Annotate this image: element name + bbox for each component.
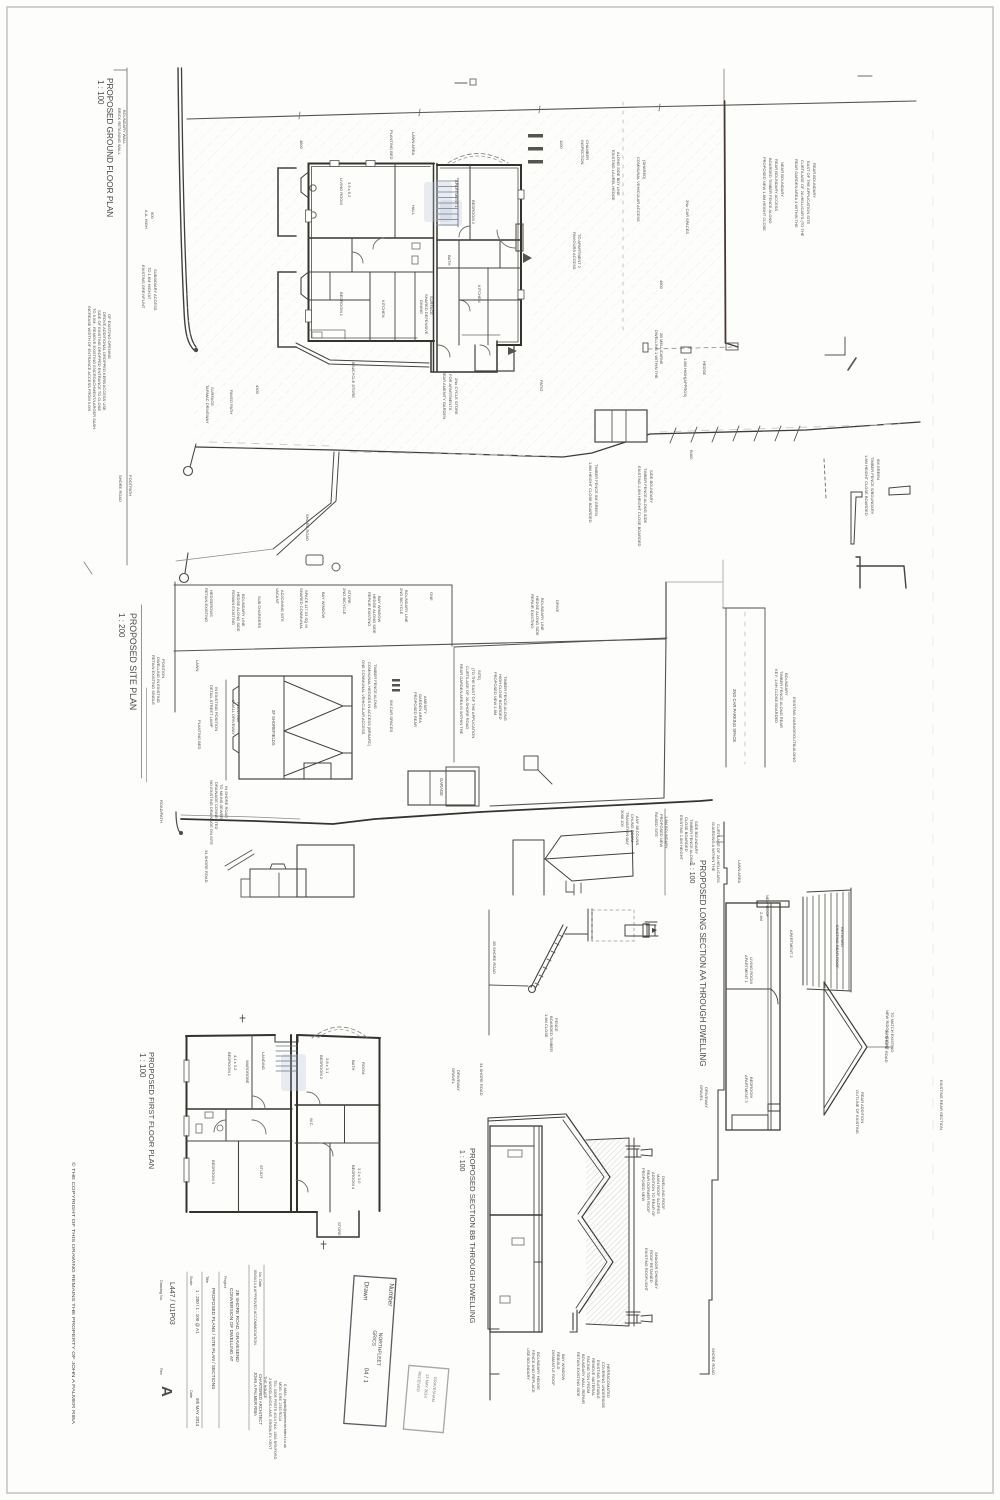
svg-text:04 / 1: 04 / 1 (362, 1368, 369, 1384)
svg-text:KITCHEN: KITCHEN (381, 300, 386, 318)
svg-text:EXISTING GARAGE/OUTBUILDING: EXISTING GARAGE/OUTBUILDING (792, 697, 797, 762)
svg-text:BOUNDARY LINE: BOUNDARY LINE (540, 598, 545, 631)
svg-text:LIVING ROOM: LIVING ROOM (749, 957, 754, 984)
svg-text:Drawn: Drawn (361, 1281, 369, 1301)
svg-text:© THE COPYRIGHT OF THIS DRAWI: © THE COPYRIGHT OF THIS DRAWING REMAINS … (71, 1162, 76, 1424)
svg-text:4800: 4800 (659, 280, 664, 290)
svg-text:SIDE BOUNDARY: SIDE BOUNDARY (649, 470, 654, 503)
svg-text:POSITION: POSITION (161, 659, 166, 678)
svg-text:2B MELLICARNE: 2B MELLICARNE (659, 333, 664, 365)
svg-text:1100: 1100 (559, 140, 564, 149)
svg-text:Title: Title (205, 1276, 209, 1283)
svg-text:GARDEN AREA: GARDEN AREA (418, 694, 423, 723)
svg-text:PROPOSED LONG SECTION AA THROU: PROPOSED LONG SECTION AA THROUGH DWELLIN… (698, 860, 707, 1067)
svg-text:NEW RIDGE HEIGHT: NEW RIDGE HEIGHT (885, 1010, 890, 1050)
svg-text:BOUNDARY WALL REPAIR: BOUNDARY WALL REPAIR (581, 1354, 586, 1404)
svg-text:PROPOSED FIRST FLOOR PLAN: PROPOSED FIRST FLOOR PLAN (147, 1052, 156, 1169)
svg-text:BEDROOM 1: BEDROOM 1 (227, 1052, 232, 1077)
svg-text:CURTILAGE OF 2A HELLICARS: CURTILAGE OF 2A HELLICARS (716, 824, 721, 883)
svg-text:PROPOSED PLANS / SITE PLAN / S: PROPOSED PLANS / SITE PLAN / SECTIONS (210, 1288, 216, 1389)
svg-text:SHAGGR CHIMNEY: SHAGGR CHIMNEY (654, 1252, 659, 1289)
svg-text:PROPOSED NEW: PROPOSED NEW (641, 1168, 646, 1201)
svg-text:2 WOODLANDS LANE, BROMLEY, KEN: 2 WOODLANDS LANE, BROMLEY, KENT (268, 1378, 272, 1450)
svg-text:2NO BICYCLE: 2NO BICYCLE (399, 588, 404, 615)
svg-text:NEAR BOUNDARY: NEAR BOUNDARY (780, 162, 785, 197)
svg-text:1 : 100: 1 : 100 (458, 1150, 465, 1172)
svg-text:INCREASE WIDTH OF ENTRANCE ACC: INCREASE WIDTH OF ENTRANCE ACCESS FROM 5… (87, 306, 92, 411)
svg-text:HEDGEROWS: HEDGEROWS (209, 590, 214, 617)
svg-text:BOUNDARY: BOUNDARY (784, 673, 789, 696)
svg-text:1.8M HEIGHT CLOSE BOARDED: 1.8M HEIGHT CLOSE BOARDED (588, 462, 593, 523)
svg-text:REAR ADDITION: REAR ADDITION (860, 1092, 865, 1123)
svg-text:ROWAN EXISTING: ROWAN EXISTING (231, 590, 236, 625)
svg-text:HEDGE ALONG SIDE: HEDGE ALONG SIDE (535, 596, 540, 636)
svg-text:APARTMENT 2: APARTMENT 2 (789, 930, 794, 958)
svg-text:PAVED PATH: PAVED PATH (229, 390, 234, 414)
svg-text:AMENITY: AMENITY (423, 696, 428, 714)
svg-text:3.8 x 3.1: 3.8 x 3.1 (325, 1058, 330, 1074)
svg-text:HEDGE ALONG SIDE: HEDGE ALONG SIDE (236, 592, 241, 632)
svg-text:WARDROBE: WARDROBE (245, 1060, 250, 1084)
svg-text:TO 1.8M HIGH AT: TO 1.8M HIGH AT (147, 267, 152, 300)
svg-text:SUB CHARGERS: SUB CHARGERS (257, 596, 262, 628)
svg-text:DROVE ADDITIONAL DROPPED KERB: DROVE ADDITIONAL DROPPED KERB ACCESS USE (102, 312, 107, 411)
svg-text:2NO BICYCLE: 2NO BICYCLE (342, 588, 347, 615)
svg-text:BRICK RETAINING WALL: BRICK RETAINING WALL (117, 108, 122, 155)
svg-text:APARTMENT 3: APARTMENT 3 (744, 1075, 749, 1103)
svg-text:BAY WINDOW: BAY WINDOW (561, 1354, 566, 1381)
svg-text:BEDROOM 2: BEDROOM 2 (471, 200, 476, 225)
svg-text:TRANSITION BAY: TRANSITION BAY (625, 812, 630, 845)
svg-text:BIN/CYCLE STORE: BIN/CYCLE STORE (351, 362, 356, 398)
svg-text:SURFACE: SURFACE (210, 387, 215, 406)
svg-text:PROPOSED GROUND FLOOR PLAN: PROPOSED GROUND FLOOR PLAN (105, 78, 114, 217)
svg-text:EXISTING REAR ROOF: EXISTING REAR ROOF (835, 925, 840, 969)
svg-text:DRAINAGE CONNECTED: DRAINAGE CONNECTED (214, 782, 219, 829)
svg-text:SIDE BOUNDARY: SIDE BOUNDARY (694, 821, 699, 854)
svg-text:SPACE 117.03 SQ M: SPACE 117.03 SQ M (304, 590, 309, 628)
svg-text:4800: 4800 (299, 140, 304, 150)
svg-text:CONVERSION OF DWELLING AT: CONVERSION OF DWELLING AT (228, 1288, 234, 1362)
svg-text:DWELLING ROOF: DWELLING ROOF (661, 1176, 666, 1210)
svg-text:BOUNDARY LINE: BOUNDARY LINE (241, 594, 246, 627)
svg-text:CURTILAGE OF 2A HELLICAR'S (TO: CURTILAGE OF 2A HELLICAR'S (TO THE (800, 160, 805, 237)
svg-text:KEY: 1.8H CLOSE BOARDED: KEY: 1.8H CLOSE BOARDED (774, 669, 779, 723)
svg-text:1.8M HEIGHT CLOSE BOARDED: 1.8M HEIGHT CLOSE BOARDED (864, 455, 869, 516)
svg-text:2B SHORE ROAD: 2B SHORE ROAD (492, 941, 497, 974)
svg-text:BATH: BATH (447, 255, 452, 265)
svg-text:OF EXISTING OPENING: OF EXISTING OPENING (107, 314, 112, 359)
svg-text:STUDY: STUDY (259, 1165, 264, 1179)
svg-text:1 : 200: 1 : 200 (117, 613, 126, 638)
svg-text:DWELLING 1 WITHIN THE: DWELLING 1 WITHIN THE (654, 330, 659, 379)
svg-text:RAISED SITE: RAISED SITE (654, 812, 659, 837)
svg-text:REAR DORMER ROOF: REAR DORMER ROOF (646, 1170, 651, 1213)
svg-text:LAWN AREA: LAWN AREA (737, 860, 742, 884)
svg-text:RECEIVED: RECEIVED (416, 1371, 423, 1392)
svg-text:SITE): SITE) (477, 670, 482, 681)
svg-text:SMALL DRIVEWAY: SMALL DRIVEWAY (231, 700, 236, 735)
svg-text:ONE: ONE (429, 592, 434, 601)
svg-text:HERRACOMATED: HERRACOMATED (606, 1364, 611, 1398)
svg-text:FOR APARTMENTS: FOR APARTMENTS (448, 374, 453, 411)
svg-text:1 : 100: 1 : 100 (138, 1053, 147, 1078)
svg-text:900: 900 (150, 212, 155, 219)
svg-text:DISMANTLE ROOF: DISMANTLE ROOF (551, 1350, 556, 1386)
svg-text:DINING: DINING (419, 300, 424, 314)
svg-text:TO APARTMENT 2: TO APARTMENT 2 (577, 234, 582, 269)
svg-text:TIMBER FENCE ALONG REAR: TIMBER FENCE ALONG REAR (779, 671, 784, 728)
svg-text:SIDE OF EXISTING DROPPED ENTRA: SIDE OF EXISTING DROPPED ENTRANCE TO CLO… (97, 310, 102, 411)
svg-text:REAR BOUNDARY: REAR BOUNDARY (812, 163, 817, 198)
svg-text:GRAVEL: GRAVEL (451, 1068, 456, 1085)
svg-text:BEDROOM 4: BEDROOM 4 (351, 1165, 356, 1190)
svg-text:LAWN: LAWN (195, 660, 200, 672)
svg-text:3.2 x 3.0: 3.2 x 3.0 (357, 1168, 362, 1184)
svg-text:DWELLING IN EXISTING: DWELLING IN EXISTING (156, 657, 161, 703)
svg-text:FENCE: FENCE (554, 1018, 559, 1032)
svg-text:HIGH CLOSE BOARDED: HIGH CLOSE BOARDED (498, 674, 503, 720)
svg-text:GR/CS: GR/CS (370, 1330, 377, 1347)
svg-text:APARTMENT 1: APARTMENT 1 (744, 955, 749, 983)
svg-text:TIMBER FENCE ALONG: TIMBER FENCE ALONG (503, 676, 508, 721)
svg-text:1 : 200 / 1 : 100 @ A1: 1 : 200 / 1 : 100 @ A1 (195, 1290, 200, 1334)
svg-text:BEDROOM 1: BEDROOM 1 (339, 292, 344, 317)
svg-text:TIMBER FENCE ALONG: TIMBER FENCE ALONG (689, 819, 694, 864)
svg-text:ONE COMMUNAL VEHICULAR ACCESS: ONE COMMUNAL VEHICULAR ACCESS (361, 660, 366, 735)
svg-text:DRIVE: DRIVE (555, 600, 560, 613)
svg-text:(SHARED): (SHARED) (642, 160, 647, 180)
svg-text:9th MAY 2014: 9th MAY 2014 (195, 1398, 200, 1427)
svg-text:NO EXISTING DRAINAGE ON SITE: NO EXISTING DRAINAGE ON SITE (209, 780, 214, 845)
svg-text:34 SHORE ROAD: 34 SHORE ROAD (204, 850, 209, 883)
svg-text:3.9 x 5.2: 3.9 x 5.2 (347, 182, 352, 198)
svg-text:DETAIL STREET LAMP: DETAIL STREET LAMP (209, 685, 214, 728)
svg-text:Number: Number (386, 1283, 395, 1307)
svg-text:CURTILAGE OF 2A SHORE ROAD: CURTILAGE OF 2A SHORE ROAD (465, 666, 470, 729)
svg-text:6M GREEN: 6M GREEN (876, 459, 881, 480)
svg-text:SHARED DEFENSIVE: SHARED DEFENSIVE (424, 294, 429, 335)
svg-text:HALL: HALL (411, 205, 416, 216)
svg-text:THE HOUSE: THE HOUSE (263, 1376, 267, 1399)
svg-text:EXISTING SUITABLE: EXISTING SUITABLE (596, 1360, 601, 1399)
svg-text:SHORE ROAD: SHORE ROAD (118, 475, 123, 502)
svg-text:(TO THE EAST OF THE APPLICATIO: (TO THE EAST OF THE APPLICATION (471, 668, 476, 738)
svg-text:2B SHORE ROAD, GRAVESEND: 2B SHORE ROAD, GRAVESEND (234, 1290, 240, 1362)
svg-text:A: A (158, 1386, 175, 1397)
svg-text:LAWN AREA: LAWN AREA (411, 132, 416, 156)
svg-text:ADJOINING SITE: ADJOINING SITE (280, 590, 285, 622)
svg-text:RETAIN EXISTING SINGLE: RETAIN EXISTING SINGLE (151, 655, 156, 705)
svg-text:RETAIN EXISTING: RETAIN EXISTING (204, 588, 209, 622)
svg-text:APARTMENT 1: APARTMENT 1 (454, 180, 459, 208)
svg-text:BOUNDARY LINE: BOUNDARY LINE (404, 590, 409, 623)
svg-text:NEW ROOF: NEW ROOF (765, 895, 770, 918)
svg-text:REBUILD: REBUILD (556, 1352, 561, 1369)
svg-text:PROPOSED REAR: PROPOSED REAR (413, 692, 418, 727)
svg-text:LIVING ROOM: LIVING ROOM (339, 178, 344, 205)
svg-text:RETAINED: RETAINED (840, 927, 845, 947)
svg-text:COVERING UNDERSIDE: COVERING UNDERSIDE (601, 1362, 606, 1408)
svg-text:SUBSIDIARY ACCESS: SUBSIDIARY ACCESS (153, 269, 158, 311)
svg-text:W.C.: W.C. (309, 1118, 314, 1127)
svg-text:3068 100: 3068 100 (620, 810, 625, 827)
svg-text:L447 / U1P03: L447 / U1P03 (168, 1282, 175, 1325)
svg-text:BATH: BATH (351, 1060, 356, 1070)
svg-text:9M CAR SPACES: 9M CAR SPACES (389, 700, 394, 732)
svg-text:TEL: 0208 PRSTE 4014 FAX: 135: TEL: 0208 PRSTE 4014 FAX: 1356 BRNFORD (273, 1380, 277, 1460)
svg-text:PROPOSED SITE PLAN: PROPOSED SITE PLAN (128, 613, 138, 710)
svg-text:SHARED COMMUNAL: SHARED COMMUNAL (299, 588, 304, 630)
svg-text:TO 5.5M - REMOVE EXISTING ENCR: TO 5.5M - REMOVE EXISTING ENCROACHMENT/L… (92, 308, 97, 429)
svg-text:REAR AMENITY GARDEN: REAR AMENITY GARDEN (442, 371, 447, 419)
svg-text:13 MAY 2014: 13 MAY 2014 (423, 1374, 430, 1399)
svg-text:EXISTING REAR SECTION: EXISTING REAR SECTION (939, 1080, 944, 1130)
svg-text:4.1 x 3.2: 4.1 x 3.2 (233, 1055, 238, 1071)
svg-text:BOARDED TIMBER: BOARDED TIMBER (549, 1016, 554, 1052)
svg-text:DRIVEWAY: DRIVEWAY (704, 1087, 709, 1108)
svg-text:STORE: STORE (347, 590, 352, 604)
svg-text:TO MAINS SEWER: TO MAINS SEWER (219, 784, 224, 819)
svg-text:PATIO: PATIO (539, 380, 544, 391)
svg-text:MAIN ROOF SLOPES: MAIN ROOF SLOPES (656, 1174, 661, 1214)
svg-text:2F SHOREFIELDS: 2F SHOREFIELDS (271, 710, 276, 746)
svg-text:PLANTING BED: PLANTING BED (197, 720, 202, 749)
svg-text:PROPOSED NEW 1.8M HEIGHT CLOSE: PROPOSED NEW 1.8M HEIGHT CLOSE (762, 157, 767, 231)
svg-text:Project: Project (223, 1276, 227, 1289)
svg-text:BEDROOM 3: BEDROOM 3 (211, 1160, 216, 1185)
svg-text:USE BOUNDARY: USE BOUNDARY (526, 1348, 531, 1380)
svg-text:RETAIN EXISTING SIDE: RETAIN EXISTING SIDE (576, 1352, 581, 1397)
svg-text:KITCHEN: KITCHEN (477, 285, 482, 303)
svg-text:EXISTING GREY/FLINT: EXISTING GREY/FLINT (141, 265, 146, 309)
svg-text:PROPOSED NEW 1.8M: PROPOSED NEW 1.8M (493, 672, 498, 715)
svg-text:EXISTING ROOFLIGHT: EXISTING ROOFLIGHT (644, 1248, 649, 1292)
svg-text:E-MAIL: japrib@palmerarchitect: E-MAIL: japrib@palmerarchitect.co.uk (283, 1384, 287, 1448)
svg-text:OUTLINE OF EXISTING: OUTLINE OF EXISTING (855, 1090, 860, 1134)
svg-text:TARMAC DRIVEWAY: TARMAC DRIVEWAY (205, 385, 210, 424)
svg-text:Date: Date (189, 1390, 193, 1398)
svg-text:ROOF RETAINED: ROOF RETAINED (649, 1250, 654, 1283)
svg-text:CHARTERED ARCHITECT: CHARTERED ARCHITECT (258, 1374, 263, 1425)
svg-text:TIMBER FENCE S/BOUNDARY: TIMBER FENCE S/BOUNDARY (870, 457, 875, 515)
svg-text:B400: B400 (689, 450, 694, 460)
svg-text:1 : 100: 1 : 100 (688, 862, 695, 884)
svg-text:GRAVESHAM: GRAVESHAM (431, 1377, 438, 1403)
svg-text:BEDROOM 2: BEDROOM 2 (319, 1055, 324, 1080)
svg-text:BOARDED TIMBER FENCE ALONG: BOARDED TIMBER FENCE ALONG (768, 158, 773, 224)
svg-text:1 : 100: 1 : 100 (96, 80, 105, 105)
svg-text:DRIVEWAY: DRIVEWAY (456, 1070, 461, 1091)
svg-text:TO MATCH EXISTING: TO MATCH EXISTING (890, 1012, 895, 1052)
svg-text:BEDROOM: BEDROOM (749, 1077, 754, 1098)
svg-text:4300: 4300 (255, 385, 260, 395)
svg-text:1.8M HIGH(APPROX): 1.8M HIGH(APPROX) (683, 358, 688, 398)
svg-text:BAY WINDOW: BAY WINDOW (321, 592, 326, 619)
svg-text:SHORE ROAD: SHORE ROAD (305, 514, 310, 541)
svg-text:PLANTING BED: PLANTING BED (389, 130, 394, 159)
svg-text:REMOVE MATERIAL: REMOVE MATERIAL (591, 1358, 596, 1397)
svg-text:No. Date: No. Date (258, 1272, 262, 1287)
svg-text:STORE: STORE (337, 1222, 342, 1236)
svg-text:LANDING: LANDING (261, 1052, 266, 1070)
svg-text:BOUNDARY WALL: BOUNDARY WALL (122, 110, 127, 145)
svg-text:PROPOSED NEW: PROPOSED NEW (659, 814, 664, 847)
svg-text:EXISTING 1.8M HEIGHT: EXISTING 1.8M HEIGHT (679, 815, 684, 860)
svg-text:CLOSE BOARDED: CLOSE BOARDED (684, 817, 689, 852)
svg-text:1.8M BOUNDARY: 1.8M BOUNDARY (664, 816, 669, 849)
svg-text:PROPOSED SECTION BB THROUGH DW: PROPOSED SECTION BB THROUGH DWELLING (468, 1148, 477, 1323)
svg-text:2No CYCLE STORE: 2No CYCLE STORE (454, 378, 459, 415)
svg-text:EXISTING 1.8M HEIGHT CLOSE BOA: EXISTING 1.8M HEIGHT CLOSE BOARDED (637, 466, 642, 547)
svg-text:IN SHORE ROAD: IN SHORE ROAD (224, 786, 229, 818)
svg-text:HEDGE ALONG SIDE: HEDGE ALONG SIDE (372, 594, 377, 634)
svg-text:EXISTING LAUREL HEDGE: EXISTING LAUREL HEDGE (611, 150, 616, 201)
svg-text:COMMUNAL HEDGES IN ACCESS (BRS: COMMUNAL HEDGES IN ACCESS (BRSARC) (367, 662, 372, 747)
svg-text:TIMBER FENCE ALONG SIDE: TIMBER FENCE ALONG SIDE (643, 468, 648, 523)
svg-text:JOHN A PALMER RIBA: JOHN A PALMER RIBA (253, 1372, 258, 1416)
svg-text:FACING TON FROM: FACING TON FROM (586, 1356, 591, 1393)
svg-text:VACANT: VACANT (275, 588, 280, 604)
svg-text:TIMBER FENCE 6M GREEN: TIMBER FENCE 6M GREEN (594, 464, 599, 516)
svg-text:BOUNDARY HEDGE: BOUNDARY HEDGE (536, 1352, 541, 1390)
svg-text:ADDITION TO REAR OF: ADDITION TO REAR OF (651, 1172, 656, 1217)
svg-text:COMMUNAL VEHICULAR ACCESS: COMMUNAL VEHICULAR ACCESS (636, 157, 641, 222)
svg-text:ALONG SIDE BDY LINE: ALONG SIDE BDY LINE (616, 152, 621, 196)
svg-text:SHORE ROAD: SHORE ROAD (711, 1348, 716, 1375)
svg-text:FENCE AND REPLACE: FENCE AND REPLACE (531, 1350, 536, 1393)
svg-text:Rev: Rev (159, 1368, 163, 1375)
svg-text:Scale: Scale (189, 1276, 193, 1286)
svg-text:Drawing No.: Drawing No. (159, 1280, 163, 1301)
svg-text:REPAIR EXISTING: REPAIR EXISTING (367, 592, 372, 626)
svg-text:HEDGE: HEDGE (702, 361, 707, 376)
svg-text:ROOM: ROOM (361, 1062, 366, 1074)
svg-text:SURFACE: SURFACE (429, 296, 434, 315)
svg-text:3No CAR SPACES: 3No CAR SPACES (685, 200, 690, 234)
svg-text:REAR GARDEN AREA IS WITHIN THE: REAR GARDEN AREA IS WITHIN THE (459, 664, 464, 734)
svg-text:REAR BOUNDARY ACCESS: REAR BOUNDARY ACCESS (774, 159, 779, 211)
svg-text:CHUNG ROOM: CHUNG ROOM (630, 814, 635, 842)
svg-text:BAY WINDOW: BAY WINDOW (377, 596, 382, 623)
svg-text:2.4M: 2.4M (759, 912, 764, 921)
svg-text:REPAIR EXISTING: REPAIR EXISTING (530, 594, 535, 628)
svg-text:REAR GARDEN AREA 4 WITHIN THE: REAR GARDEN AREA 4 WITHIN THE (794, 159, 799, 228)
svg-text:INSPECTION: INSPECTION (580, 140, 585, 165)
svg-text:ROAD/PATH: ROAD/PATH (159, 800, 164, 823)
svg-text:PLANTING: PLANTING (236, 702, 241, 722)
svg-text:FOOTPATH: FOOTPATH (128, 475, 133, 496)
svg-text:GRAVEL: GRAVEL (699, 1085, 704, 1102)
svg-text:2ND CAR PARKING SPACE: 2ND CAR PARKING SPACE (732, 689, 737, 742)
svg-text:A.A. HIGH: A.A. HIGH (144, 210, 149, 229)
svg-text:ANY SECOUNS: ANY SECOUNS (635, 816, 640, 845)
svg-text:PAVIOURS ACCESS: PAVIOURS ACCESS (572, 232, 577, 270)
svg-text:GUARDING A WITHIN THE: GUARDING A WITHIN THE (711, 822, 716, 872)
svg-text:1.8M CLOSE: 1.8M CLOSE (544, 1014, 549, 1038)
svg-text:CHAMBER: CHAMBER (585, 140, 590, 160)
svg-text:05/06/14 A APPROVED ACCO: 05/06/14 A APPROVED ACCOMMODATION (253, 1270, 257, 1345)
svg-text:34 SHORE ROAD: 34 SHORE ROAD (479, 1063, 484, 1096)
svg-text:TIMBER FENCE ALONG: TIMBER FENCE ALONG (373, 664, 378, 709)
svg-text:MOB: GRE 1745 RD14: MOB: GRE 1745 RD14 (278, 1382, 282, 1421)
svg-text:EAST OF THE APPLICATION SITE: EAST OF THE APPLICATION SITE (806, 161, 811, 224)
svg-text:GARAGE: GARAGE (439, 778, 444, 796)
svg-text:IN EXISTING POSITION: IN EXISTING POSITION (214, 687, 219, 731)
